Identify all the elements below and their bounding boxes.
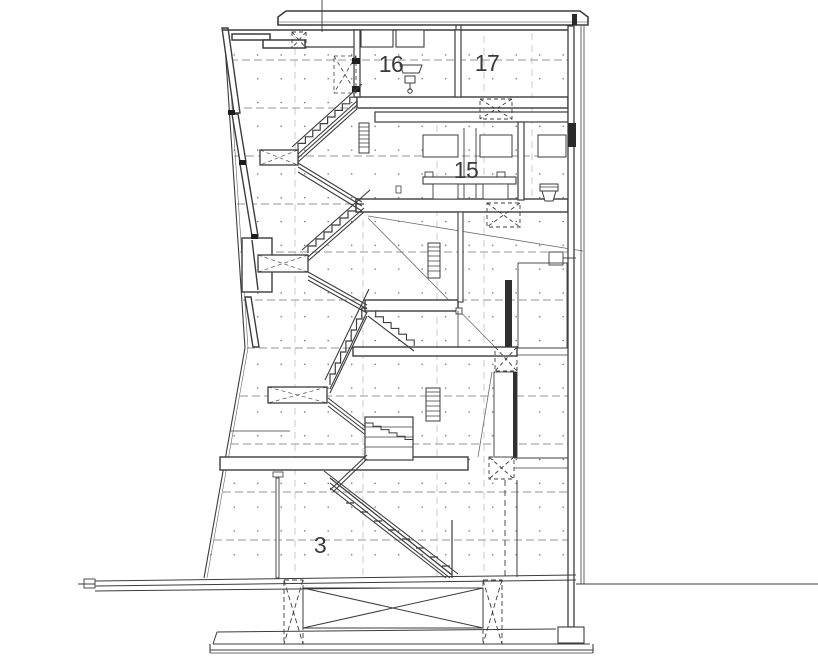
canopy-fitting [273,472,283,477]
blueprint-canvas: 16 17 15 3 [0,0,818,660]
partition-15 [518,122,524,200]
slab-mid-right [353,347,517,356]
slab-level-16 [357,97,568,108]
floor-item [396,186,401,193]
room-label-17: 17 [475,50,500,76]
cabinet-2 [396,30,424,47]
room-label-3: 3 [314,532,326,558]
shelf-3 [538,135,566,157]
foundation-x-brace [303,588,483,628]
roof-edge-cap [572,14,577,25]
room-label-15: 15 [454,157,479,183]
partition-16-17 [455,30,461,97]
slab-level-3-ceiling [220,457,468,470]
right-footing [558,627,584,643]
base-slab [210,644,593,653]
shelf-2 [480,135,512,157]
hatched-post-2 [428,243,440,278]
slab-level-15 [356,199,568,212]
entrance-post [276,478,279,578]
right-outer-wall [568,26,574,627]
void-partition [458,212,463,302]
slab-mezzanine [365,300,458,311]
ceiling-15 [375,112,568,122]
stair-stack-box [365,417,413,460]
hatched-post-3 [426,388,440,421]
cabinet-1 [361,30,393,47]
foundation-piers [284,580,502,644]
room-label-16: 16 [379,51,404,77]
window-frame-section [568,123,576,147]
shelf-1 [423,135,458,157]
hatched-post-1 [359,123,369,153]
foundation [78,575,818,653]
section-drawing: 16 17 15 3 [0,0,818,660]
shaft-mullion [505,280,512,347]
